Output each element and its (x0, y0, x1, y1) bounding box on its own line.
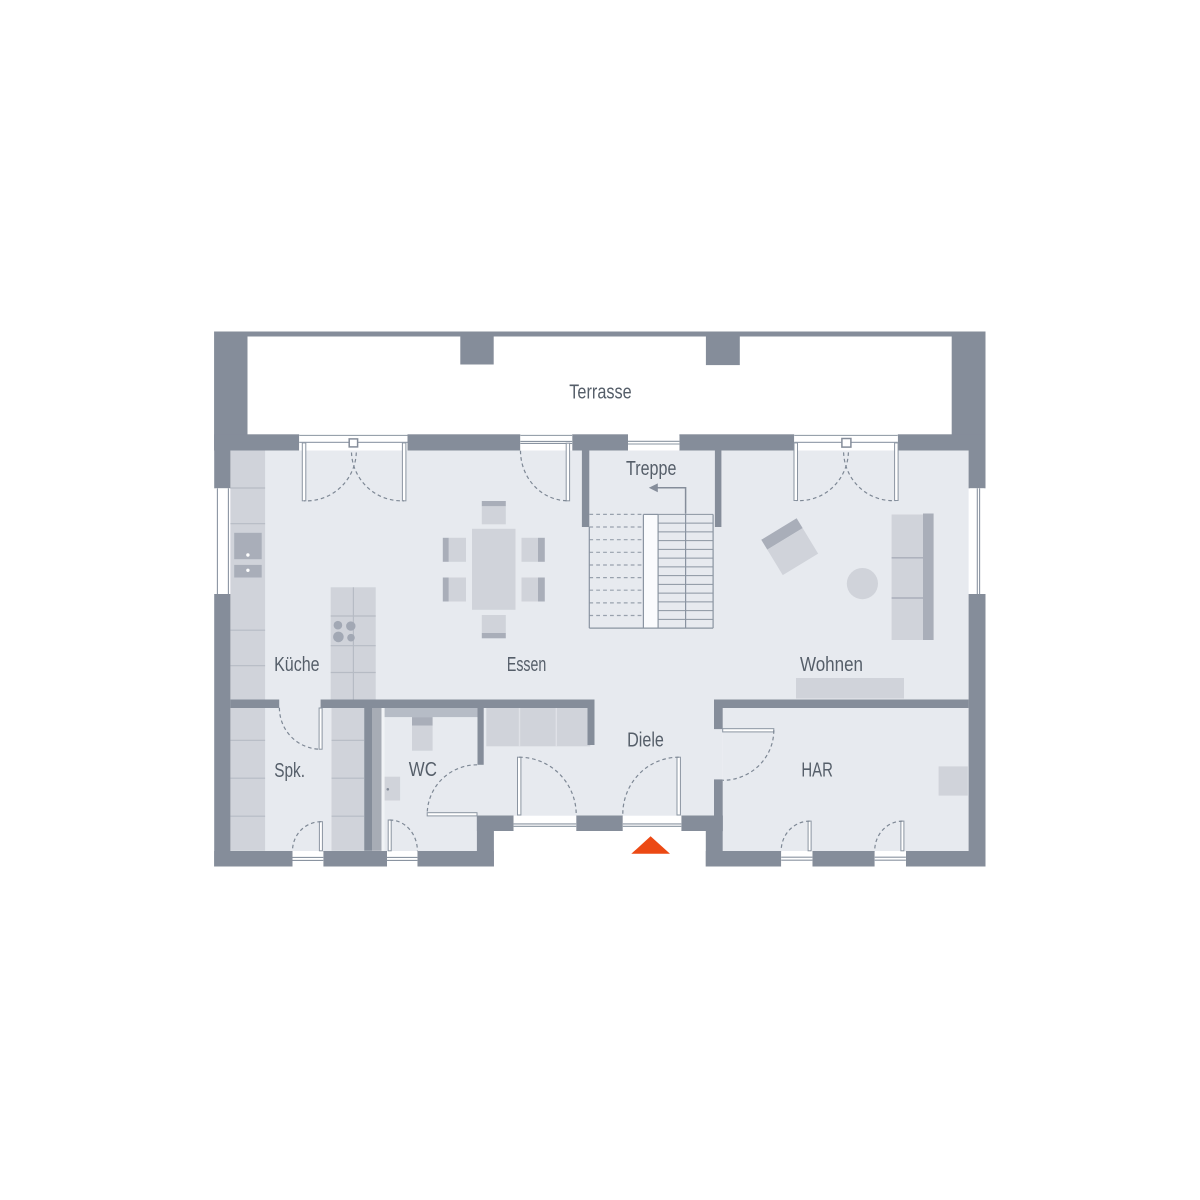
svg-text:Küche: Küche (274, 654, 320, 676)
svg-text:Treppe: Treppe (626, 458, 676, 480)
svg-text:Essen: Essen (507, 654, 546, 676)
svg-text:Wohnen: Wohnen (800, 654, 863, 676)
svg-text:Terrasse: Terrasse (569, 382, 631, 404)
svg-text:Spk.: Spk. (274, 760, 305, 782)
svg-text:Diele: Diele (627, 730, 664, 752)
svg-text:HAR: HAR (801, 759, 833, 781)
svg-text:WC: WC (409, 759, 437, 781)
